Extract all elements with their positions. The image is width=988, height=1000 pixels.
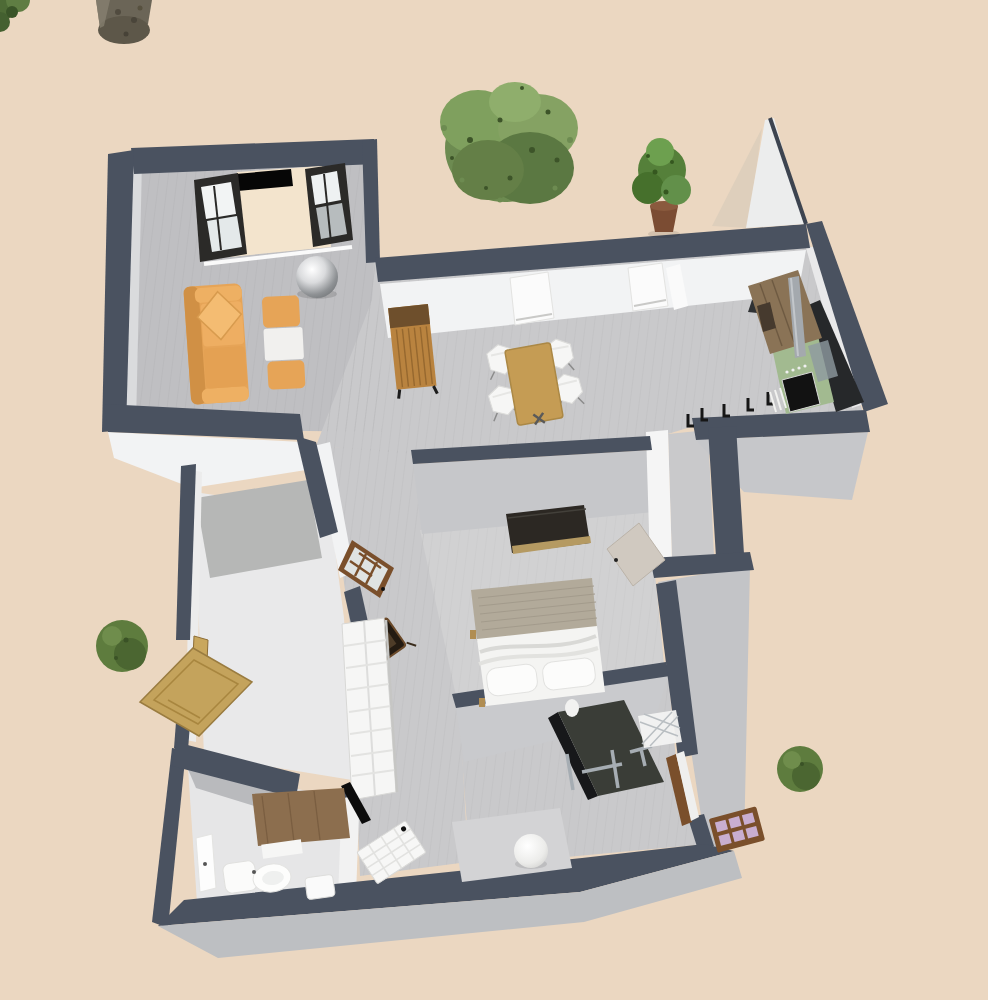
garden-bush-large[interactable] (440, 82, 578, 204)
white-dome-lamp[interactable] (514, 834, 548, 868)
balcony-window-right[interactable] (305, 163, 353, 247)
garden-bush-small-right[interactable] (777, 746, 823, 792)
pillow (541, 657, 596, 691)
door-handle (614, 558, 618, 562)
bedpost (470, 630, 476, 639)
pillow (485, 663, 538, 697)
wardrobe-lattice-panel[interactable] (342, 618, 397, 800)
bedpost (479, 698, 485, 707)
sink-pedestal[interactable] (305, 874, 336, 900)
door-handle (381, 587, 385, 591)
shower-handle (203, 862, 207, 866)
drying-rack[interactable] (638, 710, 682, 748)
white-jug (565, 699, 579, 717)
balcony-window-left[interactable] (194, 173, 247, 262)
sofa[interactable] (183, 283, 249, 405)
lounge-chair[interactable] (262, 295, 306, 390)
silver-dome-lamp[interactable] (296, 256, 338, 298)
bathroom-wood-floor (252, 788, 350, 846)
tree-trunk[interactable] (96, 0, 152, 44)
garden-bush-small-left[interactable] (96, 620, 148, 672)
floorplan-3d-view (0, 0, 988, 1000)
double-bed[interactable] (470, 578, 605, 707)
